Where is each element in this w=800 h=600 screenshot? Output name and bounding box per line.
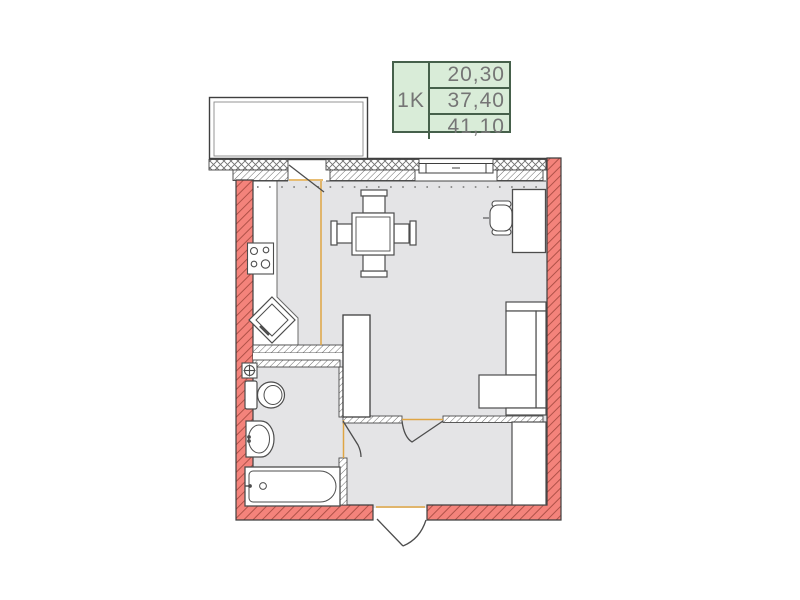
stove bbox=[248, 243, 274, 274]
balcony bbox=[210, 98, 368, 160]
area-value-1: 20,30 bbox=[430, 63, 509, 89]
area-value-2: 37,40 bbox=[430, 89, 509, 115]
entrance-door bbox=[377, 519, 426, 546]
window-sill-mid bbox=[326, 160, 419, 171]
bathtub bbox=[245, 467, 340, 506]
water-valve-icon bbox=[242, 363, 257, 378]
sofa-chaise bbox=[479, 375, 536, 408]
duct-column bbox=[343, 315, 370, 417]
bathroom-wall-top-inner bbox=[253, 360, 340, 367]
chair-top bbox=[361, 190, 387, 196]
sofa-back bbox=[536, 311, 546, 408]
chair-bottom bbox=[361, 271, 387, 277]
legend-table: 1K 20,30 37,40 41,10 bbox=[392, 61, 511, 133]
toilet bbox=[245, 381, 285, 409]
top-wall bbox=[209, 159, 561, 182]
floorplan-page: 1K 20,30 37,40 41,10 bbox=[0, 0, 800, 600]
chair-right bbox=[410, 221, 416, 245]
wardrobe bbox=[512, 422, 546, 505]
sofa-armrest-bottom bbox=[506, 408, 546, 415]
window-sill-left bbox=[209, 160, 288, 171]
unit-type-cell: 1K bbox=[394, 63, 430, 139]
area-value-3: 41,10 bbox=[430, 115, 509, 139]
window bbox=[419, 164, 493, 174]
sofa-armrest-top bbox=[506, 302, 546, 311]
desk bbox=[513, 190, 546, 253]
bathroom-wall-top-outer bbox=[253, 345, 343, 353]
washbasin bbox=[246, 421, 274, 457]
window-sill-right bbox=[493, 160, 546, 171]
sofa-seat bbox=[506, 311, 536, 375]
chair-left bbox=[331, 221, 337, 245]
